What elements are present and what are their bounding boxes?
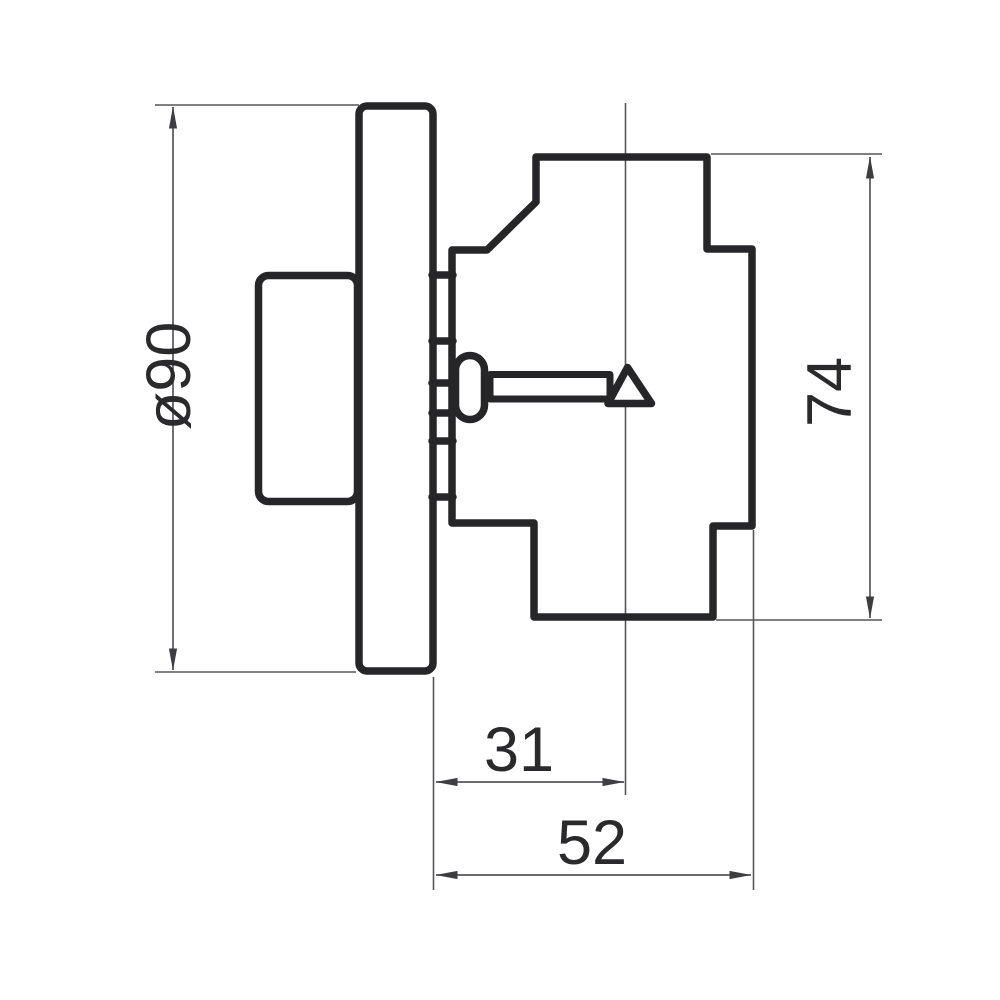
cover-plate-outline [359, 106, 433, 671]
dimension-label-plate-diameter: ø90 [134, 322, 204, 431]
dimension-label-plate-face-to-axis: 31 [484, 715, 554, 785]
drawing-canvas: ø90 74 31 52 [0, 0, 1000, 1000]
dimension-label-plate-face-to-rear: 52 [557, 808, 627, 878]
shaft-stem [490, 375, 610, 400]
technical-drawing: ø90 74 31 52 [0, 0, 1000, 1000]
dimension-label-body-height: 74 [795, 357, 865, 427]
rear-box-outline [259, 276, 358, 502]
shaft-head [456, 356, 485, 420]
pointer-triangle [608, 368, 652, 404]
